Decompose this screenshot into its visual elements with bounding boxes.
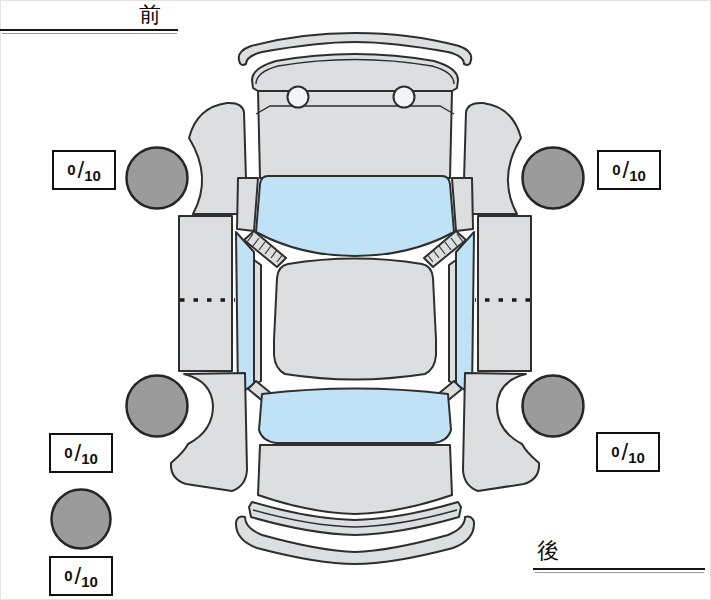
cowl-side-left [237,178,258,231]
rear-underline-shadow [535,572,704,573]
tread-score-max: 10 [84,167,101,188]
tread-score-value: 0 [64,567,72,586]
door-panel-left [179,216,232,371]
vehicle-condition-diagram: 前 後 0 / 10 0 / 10 0 / 10 0 / 10 0 / 10 [0,0,711,600]
tread-score-separator: / [77,158,84,182]
front-underline [0,29,178,31]
rear-underline [533,568,705,570]
roof [274,259,436,380]
tread-score-separator: / [622,158,629,182]
hood [258,91,452,178]
tread-score-value: 0 [64,444,72,463]
windshield [256,176,454,256]
tread-score-rear-right: 0 / 10 [596,432,660,472]
car-body-center [236,33,474,564]
tread-score-value: 0 [67,161,75,180]
tread-score-value: 0 [612,161,620,180]
tread-score-rear-left: 0 / 10 [49,433,113,473]
tread-score-max: 10 [629,167,646,188]
headlamp-washer-right-icon [394,87,415,108]
car-top-view [0,0,711,600]
tread-score-max: 10 [81,450,98,471]
tread-score-spare: 0 / 10 [49,556,113,596]
tread-score-separator: / [74,564,81,588]
roof-rail-left [254,260,261,385]
tread-score-value: 0 [611,443,619,462]
headlamp-washer-left-icon [288,87,309,108]
tread-score-front-left: 0 / 10 [52,150,116,190]
tread-score-max: 10 [628,449,645,470]
trunk-lid [258,445,452,514]
tire-front-left [127,148,188,209]
spare-tire-circle [52,490,111,549]
tire-rear-right [523,376,584,437]
front-label: 前 [139,4,161,26]
tread-score-front-right: 0 / 10 [597,150,661,190]
side-window-left [236,232,254,395]
tread-score-max: 10 [81,573,98,594]
front-underline-shadow [2,33,177,34]
rear-window [259,389,451,444]
tread-score-separator: / [74,441,81,465]
tread-score-separator: / [621,440,628,464]
tire-rear-left [127,376,188,437]
rear-label: 後 [537,540,559,562]
tire-front-right [523,148,584,209]
